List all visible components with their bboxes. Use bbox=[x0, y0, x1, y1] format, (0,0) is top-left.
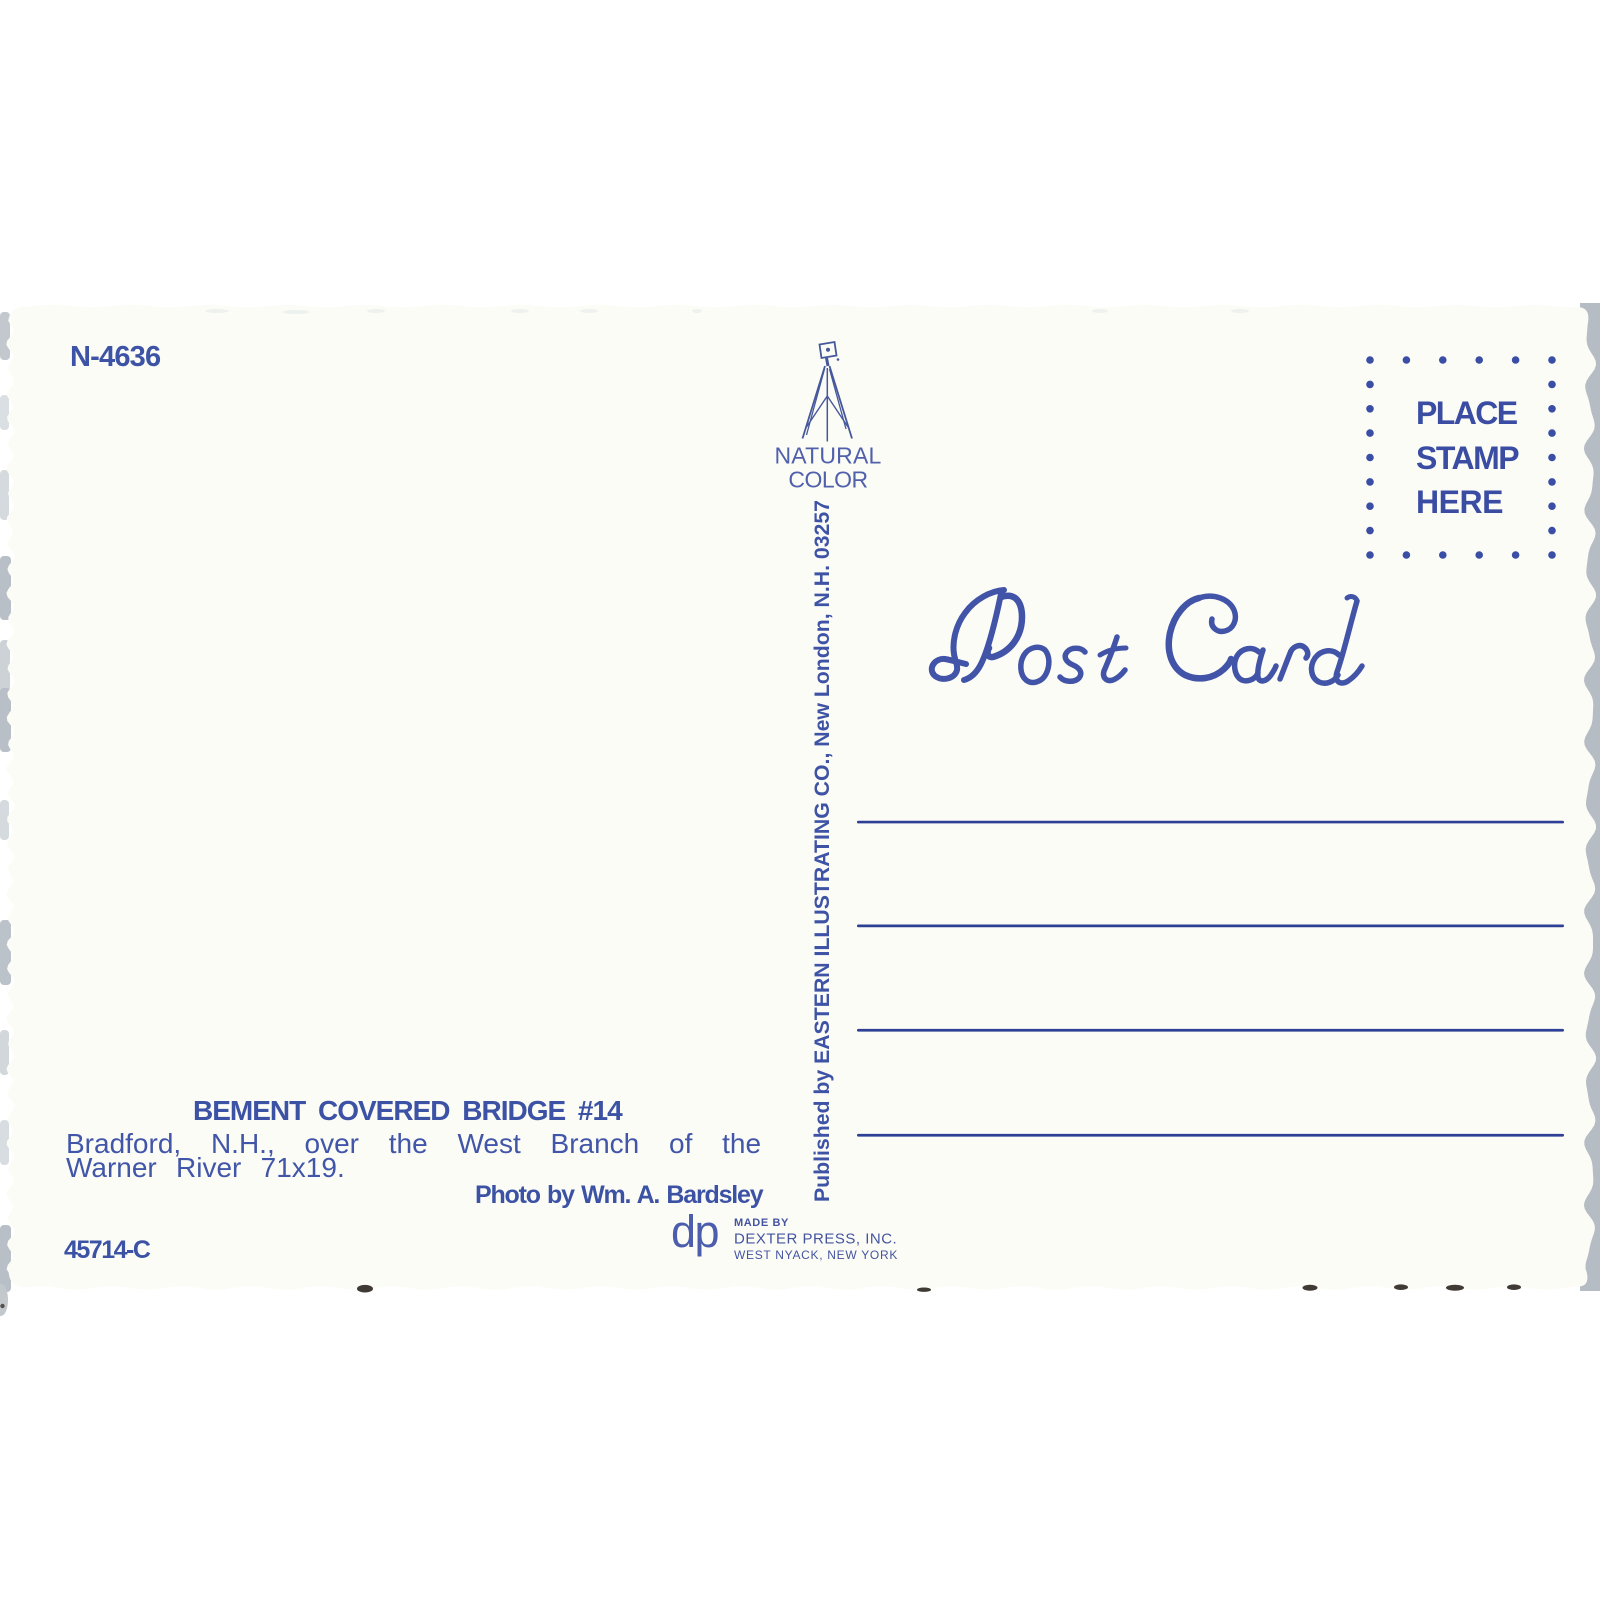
svg-text:PLACE: PLACE bbox=[1416, 395, 1518, 431]
svg-text:dp: dp bbox=[671, 1206, 719, 1257]
svg-text:BEMENT COVERED BRIDGE #14: BEMENT COVERED BRIDGE #14 bbox=[193, 1095, 623, 1126]
svg-text:N-4636: N-4636 bbox=[70, 341, 161, 373]
svg-text:COLOR: COLOR bbox=[788, 467, 867, 493]
svg-text:STAMP: STAMP bbox=[1416, 440, 1519, 476]
svg-text:45714-C: 45714-C bbox=[64, 1236, 151, 1264]
svg-text:NATURAL: NATURAL bbox=[774, 443, 881, 469]
svg-text:HERE: HERE bbox=[1416, 484, 1503, 520]
svg-text:WEST NYACK, NEW YORK: WEST NYACK, NEW YORK bbox=[734, 1248, 898, 1262]
svg-text:DEXTER PRESS, INC.: DEXTER PRESS, INC. bbox=[734, 1231, 897, 1248]
svg-text:Warner River 71x19.: Warner River 71x19. bbox=[66, 1152, 345, 1183]
svg-text:Photo by Wm. A. Bardsley: Photo by Wm. A. Bardsley bbox=[475, 1181, 764, 1209]
svg-text:MADE BY: MADE BY bbox=[734, 1217, 789, 1229]
svg-text:Published by EASTERN ILLUSTRAT: Published by EASTERN ILLUSTRATING CO., N… bbox=[810, 500, 834, 1202]
